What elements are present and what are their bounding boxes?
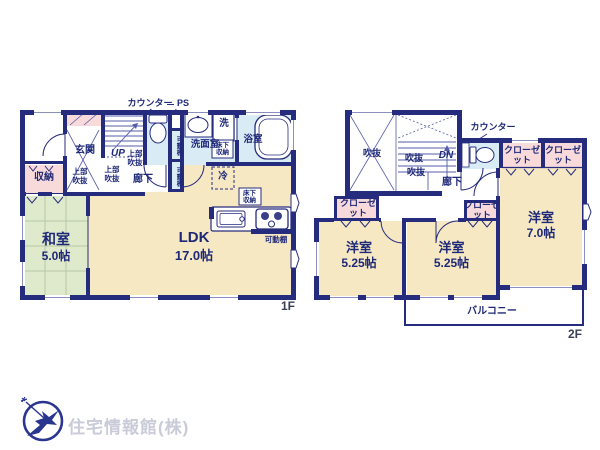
label-counter-2f: カウンター <box>468 122 518 132</box>
label-upper-void-c: 上部吹抜 <box>103 166 121 183</box>
shutter-vent-1f-a <box>291 194 299 212</box>
label-void-b: 吹抜 <box>397 153 431 163</box>
company-logo-mark <box>21 397 62 440</box>
bedroom-left-name: 洋室 <box>316 240 402 256</box>
stove-burner-2 <box>274 212 282 220</box>
label-counter-1f: カウンター <box>126 98 174 108</box>
label-hallway-1f: 廊下 <box>128 174 158 186</box>
label-closet-1: クローゼット <box>504 145 540 166</box>
room-label-ldk: LDK 17.0帖 <box>134 229 254 263</box>
label-void-a: 吹抜 <box>351 148 393 158</box>
label-fridge: 冷 <box>217 172 229 183</box>
room-label-bedroom-left: 洋室 5.25帖 <box>316 240 402 271</box>
bedroom-mid-name: 洋室 <box>407 240 496 256</box>
toilet-2f-bowl <box>476 148 494 163</box>
bedroom-mid-size: 5.25帖 <box>407 256 496 270</box>
toilet-2f-counter <box>462 143 469 167</box>
floor-tag-1f: 1F <box>276 300 300 314</box>
stove-burner-3 <box>269 221 275 227</box>
room-label-tatami: 和室 5.0帖 <box>24 231 88 263</box>
floor-tag-2f: 2F <box>562 328 588 342</box>
label-movable-shelf-kitchen: 可動棚 <box>260 236 292 245</box>
ldk-size: 17.0帖 <box>134 248 254 264</box>
floorplan-page: カウンター PS 玄関 UP 上部吹抜 上部吹抜 上部吹抜 廊下 収納 可動棚 … <box>0 0 600 450</box>
label-laundry: 洗 <box>218 119 230 130</box>
label-movable-shelf-a: 可動棚 <box>172 133 181 159</box>
label-balcony: バルコニー <box>458 306 526 318</box>
toilet-2f-tank <box>470 147 476 163</box>
bedroom-left-size: 5.25帖 <box>316 256 402 270</box>
ldk-name: LDK <box>134 229 254 248</box>
label-genkan: 玄関 <box>70 145 100 157</box>
label-closet-3: クローゼット <box>338 198 378 219</box>
label-ps: PS <box>174 98 192 108</box>
toilet-1f-bowl <box>150 123 166 143</box>
room-label-bedroom-mid: 洋室 5.25帖 <box>407 240 496 271</box>
label-underfloor-a: 床下収納 <box>214 142 231 157</box>
tatami-name: 和室 <box>24 231 88 249</box>
label-void-c: 吹抜 <box>399 167 433 177</box>
shutter-vent-2f <box>583 204 591 220</box>
toilet-1f-tank <box>149 115 167 123</box>
label-hallway-2f: 廊下 <box>438 177 466 189</box>
company-name: 住宅情報館(株) <box>68 413 189 438</box>
label-bathroom: 浴室 <box>239 135 267 146</box>
logo-bird <box>27 410 59 436</box>
washroom-faucet <box>197 116 200 119</box>
stove-burner-1 <box>261 212 269 220</box>
label-closet-2: クローゼット <box>545 145 581 166</box>
washroom-sink <box>188 118 208 133</box>
label-underfloor-b: 床下収納 <box>241 190 258 205</box>
tatami-size: 5.0帖 <box>24 249 88 263</box>
kitchen-faucet <box>240 217 244 221</box>
room-label-bedroom-right: 洋室 7.0帖 <box>500 210 582 241</box>
label-movable-shelf-b: 可動棚 <box>172 164 181 190</box>
label-closet-4: クローゼット <box>464 200 500 221</box>
label-upper-void-a: 上部吹抜 <box>126 150 144 167</box>
label-storage-1f: 収納 <box>28 172 60 184</box>
label-dn: DN <box>434 150 458 162</box>
shutter-vent-1f-b <box>291 250 299 268</box>
label-upper-void-b: 上部吹抜 <box>71 168 89 185</box>
logo-sparkle <box>21 397 27 402</box>
bedroom-right-size: 7.0帖 <box>500 226 582 240</box>
bedroom-right-name: 洋室 <box>500 210 582 226</box>
